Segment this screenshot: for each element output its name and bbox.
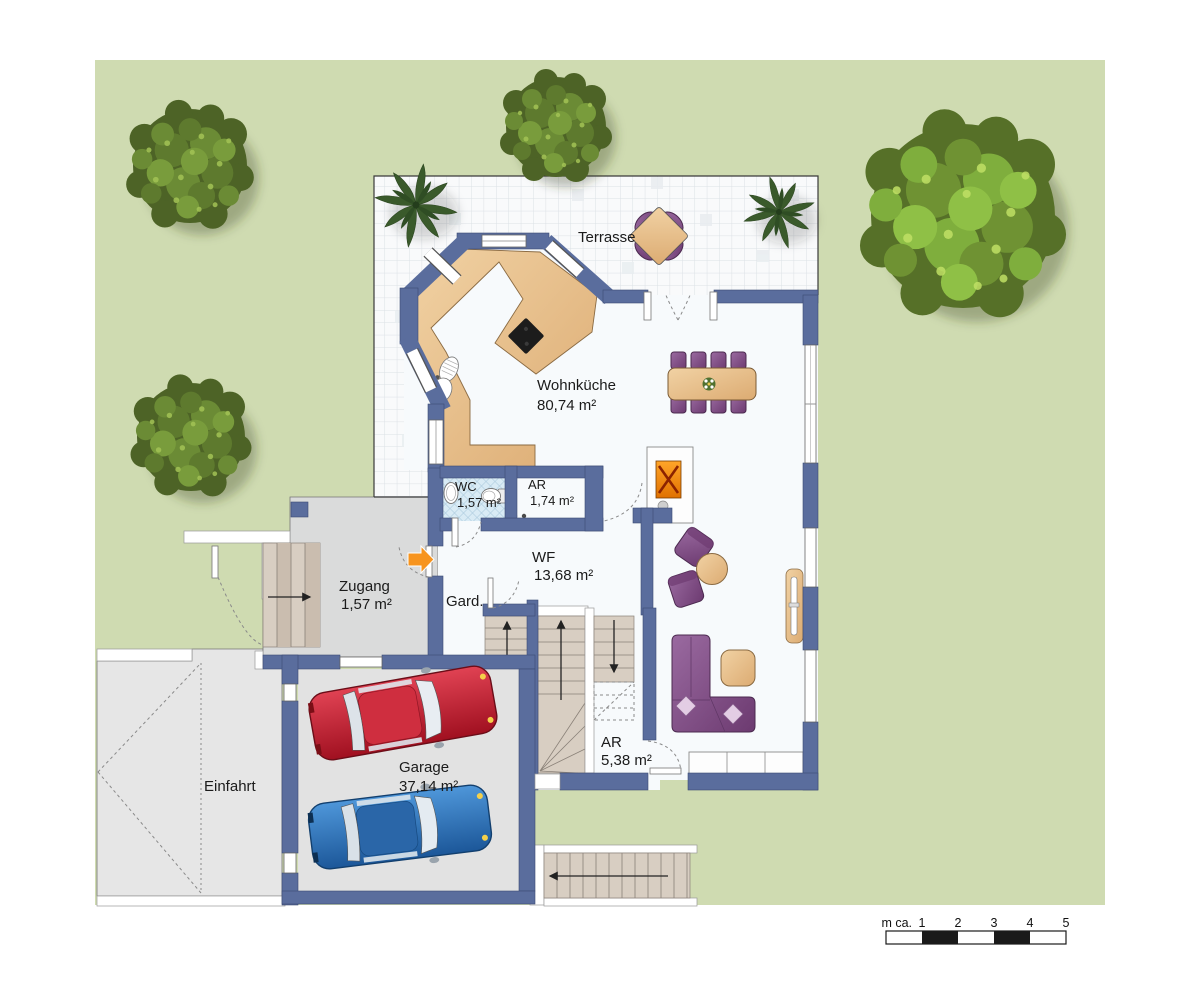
room-label-ar-eg: AR <box>528 477 546 492</box>
window <box>340 657 382 667</box>
stairs-main <box>538 616 585 773</box>
room-label-terrasse: Terrasse <box>578 229 636 246</box>
door-landing <box>535 774 560 789</box>
room-label-wf: WF <box>532 549 555 566</box>
garden-wall <box>97 649 192 661</box>
window <box>805 650 816 722</box>
room-area-wf: 13,68 m² <box>534 567 593 584</box>
stair-handrail <box>585 608 594 773</box>
scale-tick: 4 <box>1027 916 1034 930</box>
window <box>284 853 296 873</box>
garden-wall-cap <box>255 651 263 669</box>
room-area-zugang: 1,57 m² <box>341 596 392 613</box>
scale-bar: m ca. 1 2 3 4 5 <box>881 916 1069 944</box>
dining-set <box>668 352 756 413</box>
side-table <box>697 554 728 585</box>
window <box>805 528 816 587</box>
window <box>482 235 526 247</box>
window <box>805 345 816 463</box>
floor-plan-page: Terrasse Wohnküche 80,74 m² WC 1,57 m² A… <box>0 0 1200 992</box>
scale-tick: 1 <box>919 916 926 930</box>
window <box>284 684 296 701</box>
room-label-wohnkueche: Wohnküche <box>537 377 616 394</box>
floor-plan: Terrasse Wohnküche 80,74 m² WC 1,57 m² A… <box>0 0 1200 992</box>
room-label-zugang: Zugang <box>339 578 390 595</box>
room-label-garage: Garage <box>399 759 449 776</box>
garden-gate <box>212 546 218 578</box>
entry-steps <box>263 543 320 647</box>
room-label-wc: WC <box>455 479 477 494</box>
room-area-garage: 37,14 m² <box>399 778 458 795</box>
garden-wall <box>184 531 290 543</box>
coffee-table <box>721 650 755 686</box>
einfahrt-paving <box>97 649 282 896</box>
room-area-wohnkueche: 80,74 m² <box>537 397 596 414</box>
window <box>429 420 443 464</box>
room-label-ar-ug: AR <box>601 734 622 751</box>
room-area-ar-ug: 5,38 m² <box>601 752 652 769</box>
outdoor-stairs <box>530 845 697 906</box>
scale-unit-label: m ca. <box>881 916 912 930</box>
room-area-wc: 1,57 m² <box>457 495 502 510</box>
radiator <box>786 569 803 643</box>
table-plant <box>703 378 716 391</box>
scale-tick: 3 <box>991 916 998 930</box>
scale-tick: 5 <box>1063 916 1070 930</box>
room-area-ar-eg: 1,74 m² <box>530 493 575 508</box>
garden-wall <box>97 896 285 906</box>
room-label-einfahrt: Einfahrt <box>204 778 257 795</box>
scale-tick: 2 <box>955 916 962 930</box>
room-label-gard: Gard. <box>446 593 484 610</box>
